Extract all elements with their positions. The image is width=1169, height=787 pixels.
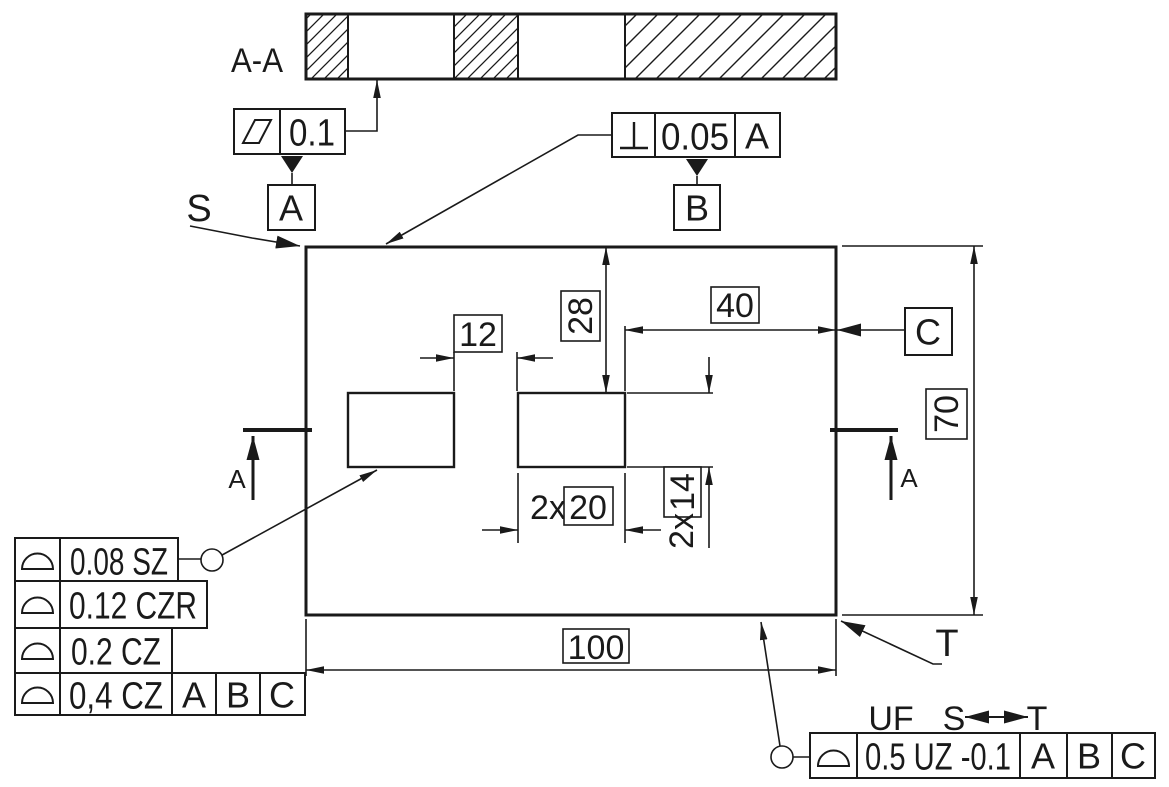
slot-right <box>518 393 625 467</box>
tolerance-value: 0,4 CZ <box>69 675 163 717</box>
section-hatch-middle <box>454 14 518 79</box>
perpendicularity-tolerance: 0.05 <box>661 116 729 158</box>
perpendicularity-callout: 0.05 A B <box>386 113 780 244</box>
engineering-drawing: A-A 0.1 A 0.05 A B S <box>0 0 1169 787</box>
datum-ref-b: B <box>226 675 250 716</box>
section-hatch-right <box>625 14 836 79</box>
flatness-callout: 0.1 A <box>234 80 377 230</box>
dimension-value: 28 <box>562 297 600 335</box>
section-hatch-left <box>306 14 348 79</box>
view-label-t-leader <box>841 621 942 664</box>
view-label-t: T <box>935 623 958 665</box>
tolerance-value: 0.2 CZ <box>71 631 161 673</box>
datum-a-label: A <box>279 188 303 229</box>
profile-stack-row-4: 0,4 CZ A B C <box>15 673 305 717</box>
tolerance-value: 0.12 CZR <box>69 585 197 627</box>
section-arrow-left-group: A <box>228 430 312 500</box>
dimension-qty: 2x <box>663 513 701 549</box>
datum-ref-a: A <box>182 675 206 716</box>
dimension-right-offset: 40 <box>625 287 836 391</box>
profile-stack-row-1: 0.08 SZ <box>15 538 178 583</box>
perpendicularity-datum-ref: A <box>745 116 769 157</box>
section-arrow-left-label: A <box>228 464 246 494</box>
datum-ref-c: C <box>269 675 295 716</box>
perpendicularity-leader <box>386 135 612 244</box>
flatness-leader <box>345 80 377 131</box>
dimension-width: 100 <box>306 619 836 676</box>
tolerance-value: 0.5 UZ -0.1 <box>865 736 1011 778</box>
datum-a-triangle-icon <box>281 156 303 173</box>
dimension-slot-width: 2x 20 <box>482 473 661 543</box>
leader-circle-icon <box>201 549 223 571</box>
datum-b-triangle-icon <box>686 159 708 176</box>
datum-b-label: B <box>685 188 709 229</box>
section-label: A-A <box>231 42 283 80</box>
datum-c-label: C <box>915 312 941 353</box>
profile-stack: 0.08 SZ 0.12 CZR 0.2 CZ 0,4 CZ A B C <box>15 470 377 717</box>
dimension-slot-height: 14 2x <box>627 357 713 549</box>
flatness-tolerance: 0.1 <box>289 112 335 154</box>
dimension-value: 100 <box>568 629 625 667</box>
datum-ref-b: B <box>1077 736 1101 777</box>
dimension-qty: 2x <box>530 489 566 527</box>
section-arrow-right-group: A <box>830 430 918 500</box>
slot-left <box>348 393 454 467</box>
profile-stack-row-2: 0.12 CZR <box>15 581 207 628</box>
dimension-slot-gap: 12 <box>420 315 553 391</box>
profile-stack-row-3: 0.2 CZ <box>15 628 172 673</box>
dimension-value: 70 <box>928 395 966 433</box>
tolerance-value: 0.08 SZ <box>70 541 168 583</box>
drawing-canvas: A-A 0.1 A 0.05 A B S <box>0 0 1169 787</box>
dimension-value: 40 <box>716 287 754 325</box>
section-arrow-right-label: A <box>900 463 918 493</box>
datum-ref-a: A <box>1031 736 1055 777</box>
leader-circle-icon <box>771 746 793 768</box>
dimension-value: 14 <box>664 473 702 511</box>
dimension-top-offset: 28 <box>561 247 606 393</box>
uf-leader <box>761 622 780 746</box>
datum-ref-c: C <box>1120 736 1146 777</box>
dimension-value: 12 <box>459 316 497 354</box>
datum-c-callout: C <box>837 308 952 355</box>
section-view: A-A <box>231 14 836 80</box>
view-label-s: S <box>186 188 211 230</box>
dimension-value: 20 <box>569 489 607 527</box>
view-label-t-group: T <box>841 621 959 665</box>
